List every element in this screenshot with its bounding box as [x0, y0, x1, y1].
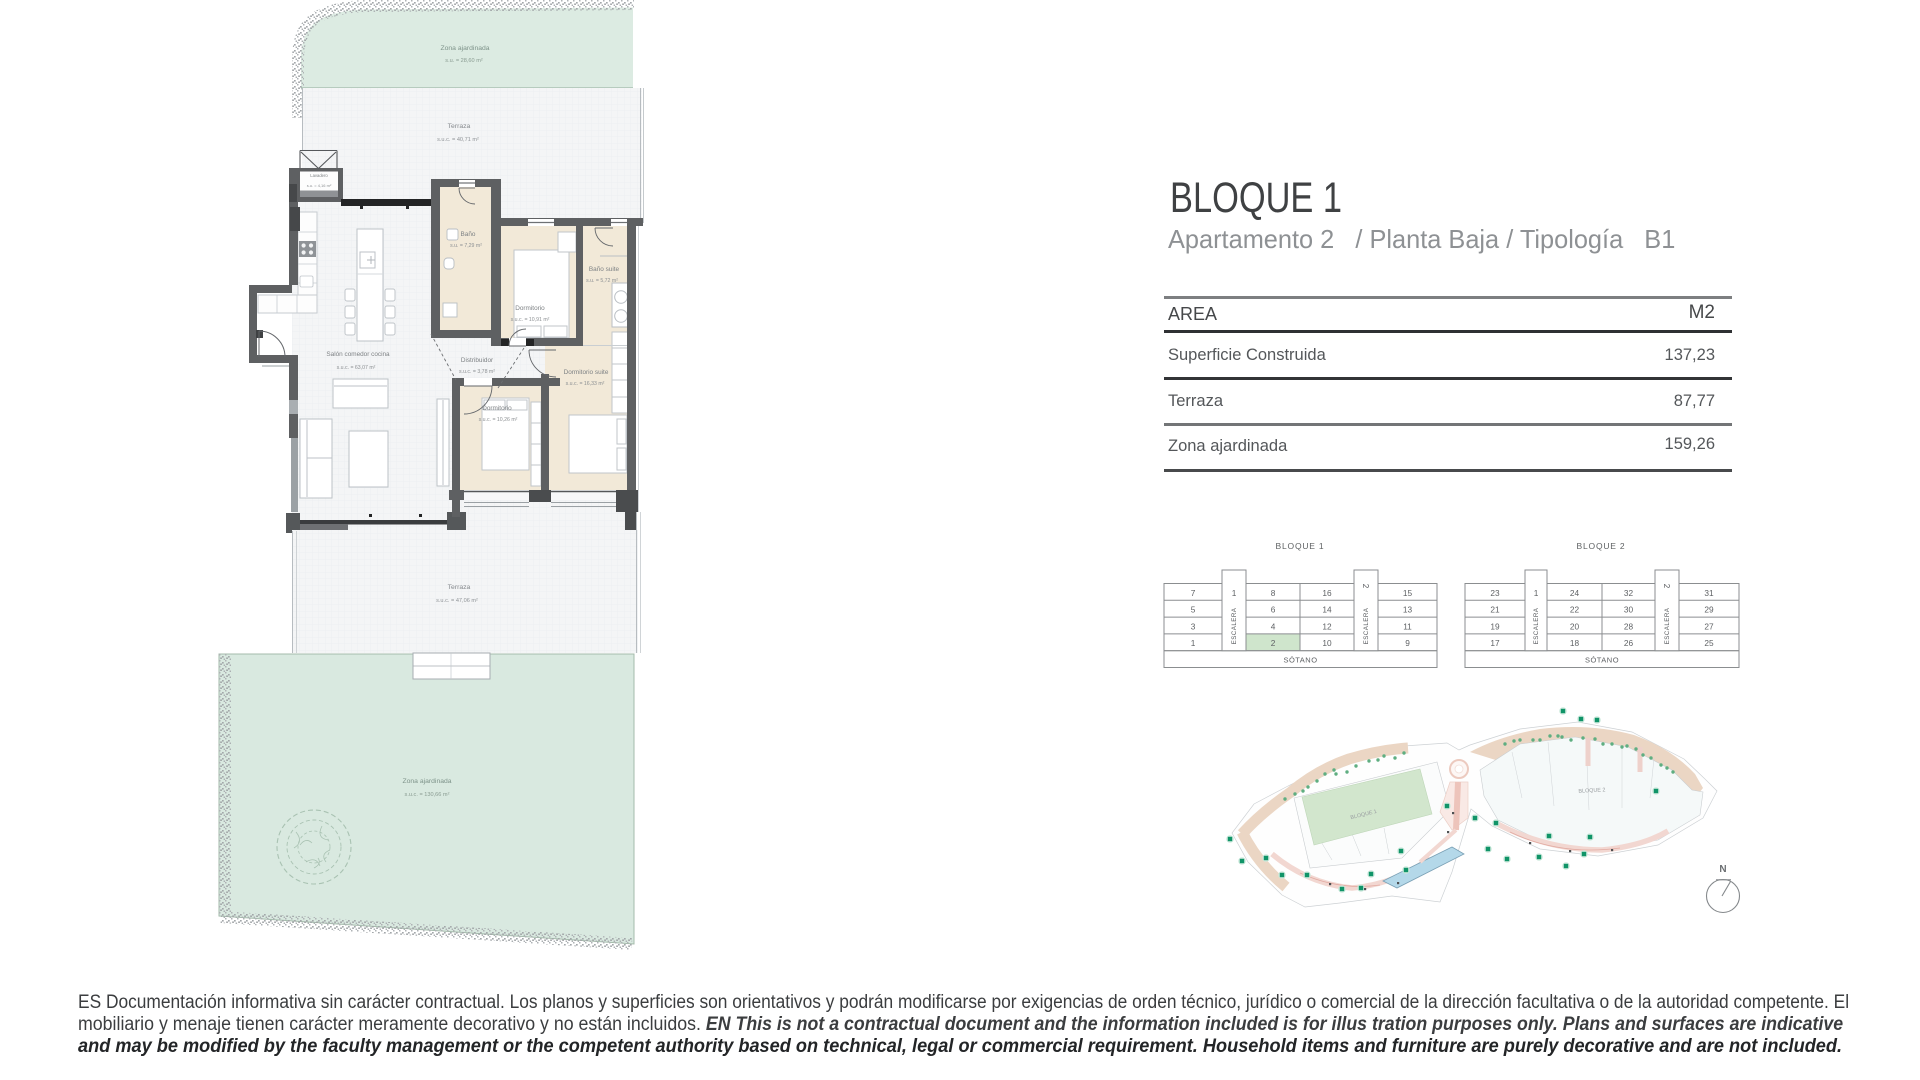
svg-text:20: 20: [1570, 621, 1580, 631]
svg-text:2: 2: [1361, 584, 1370, 589]
svg-text:s.u.c. = 3,78 m²: s.u.c. = 3,78 m²: [459, 369, 495, 375]
svg-text:Terraza: Terraza: [448, 123, 471, 130]
svg-text:BLOQUE 2: BLOQUE 2: [1577, 541, 1626, 551]
svg-text:15: 15: [1403, 588, 1413, 598]
svg-text:18: 18: [1570, 638, 1580, 648]
svg-text:Salón comedor cocina: Salón comedor cocina: [326, 351, 390, 358]
svg-text:s.u.c. = 10,91 m²: s.u.c. = 10,91 m²: [511, 317, 550, 323]
svg-text:25: 25: [1704, 638, 1714, 648]
svg-text:Baño: Baño: [461, 231, 476, 238]
svg-text:11: 11: [1403, 621, 1412, 631]
svg-text:26: 26: [1624, 638, 1634, 648]
svg-text:17: 17: [1490, 638, 1500, 648]
svg-text:s.u.c. = 130,66 m²: s.u.c. = 130,66 m²: [405, 792, 450, 798]
svg-text:24: 24: [1570, 588, 1580, 598]
svg-text:s.u.c. = 10,26 m²: s.u.c. = 10,26 m²: [479, 417, 518, 423]
svg-text:s.u. = 7,29 m²: s.u. = 7,29 m²: [450, 243, 482, 249]
svg-text:SÓTANO: SÓTANO: [1585, 656, 1619, 665]
svg-text:N: N: [1719, 864, 1726, 875]
svg-text:1: 1: [1191, 638, 1196, 648]
svg-text:4: 4: [1271, 621, 1276, 631]
svg-text:32: 32: [1624, 588, 1634, 598]
svg-text:1: 1: [1534, 588, 1539, 598]
svg-text:12: 12: [1322, 621, 1332, 631]
svg-text:2: 2: [1662, 584, 1671, 589]
svg-text:22: 22: [1570, 605, 1580, 615]
svg-text:16: 16: [1322, 588, 1332, 598]
svg-text:2: 2: [1271, 638, 1276, 648]
svg-text:s.u.c. = 63,07 m²: s.u.c. = 63,07 m²: [337, 365, 376, 371]
svg-text:s.u. = 4,16 m²: s.u. = 4,16 m²: [307, 183, 332, 188]
svg-text:28: 28: [1624, 621, 1634, 631]
svg-text:ESCALERA: ESCALERA: [1363, 607, 1370, 644]
svg-text:7: 7: [1191, 588, 1196, 598]
svg-text:Baño suite: Baño suite: [589, 266, 620, 273]
svg-text:27: 27: [1704, 621, 1714, 631]
svg-text:s.u.c. = 47,06 m²: s.u.c. = 47,06 m²: [436, 598, 478, 604]
svg-text:Distribuidor: Distribuidor: [461, 357, 494, 364]
svg-text:s.u.c. = 40,71 m²: s.u.c. = 40,71 m²: [437, 137, 479, 143]
svg-text:SÓTANO: SÓTANO: [1283, 656, 1317, 665]
svg-text:Terraza: Terraza: [448, 584, 471, 591]
svg-text:5: 5: [1191, 605, 1196, 615]
svg-text:s.u.c. = 16,33 m²: s.u.c. = 16,33 m²: [566, 381, 605, 387]
svg-text:10: 10: [1322, 638, 1332, 648]
svg-text:ESCALERA: ESCALERA: [1664, 607, 1671, 644]
svg-text:Dormitorio: Dormitorio: [515, 305, 545, 312]
svg-text:9: 9: [1405, 638, 1410, 648]
svg-text:19: 19: [1490, 621, 1500, 631]
svg-text:13: 13: [1403, 605, 1413, 615]
svg-text:ESCALERA: ESCALERA: [1231, 607, 1238, 644]
svg-text:BLOQUE 1: BLOQUE 1: [1276, 541, 1325, 551]
svg-text:6: 6: [1271, 605, 1276, 615]
svg-text:8: 8: [1271, 588, 1276, 598]
svg-text:Dormitorio: Dormitorio: [482, 405, 512, 412]
svg-text:30: 30: [1624, 605, 1634, 615]
svg-text:Dormitorio suite: Dormitorio suite: [564, 369, 609, 376]
svg-text:21: 21: [1490, 605, 1500, 615]
svg-text:s.u. = 5,72 m²: s.u. = 5,72 m²: [586, 278, 618, 284]
svg-text:14: 14: [1322, 605, 1332, 615]
svg-text:29: 29: [1704, 605, 1714, 615]
svg-text:23: 23: [1490, 588, 1500, 598]
svg-text:31: 31: [1704, 588, 1714, 598]
svg-text:s.u. = 28,60 m²: s.u. = 28,60 m²: [445, 58, 483, 64]
svg-text:1: 1: [1232, 588, 1237, 598]
svg-text:ESCALERA: ESCALERA: [1533, 607, 1540, 644]
svg-text:3: 3: [1191, 621, 1196, 631]
svg-text:Zona ajardinada: Zona ajardinada: [402, 778, 451, 785]
svg-text:Lavadero: Lavadero: [310, 173, 328, 178]
svg-text:Zona ajardinada: Zona ajardinada: [440, 45, 489, 52]
